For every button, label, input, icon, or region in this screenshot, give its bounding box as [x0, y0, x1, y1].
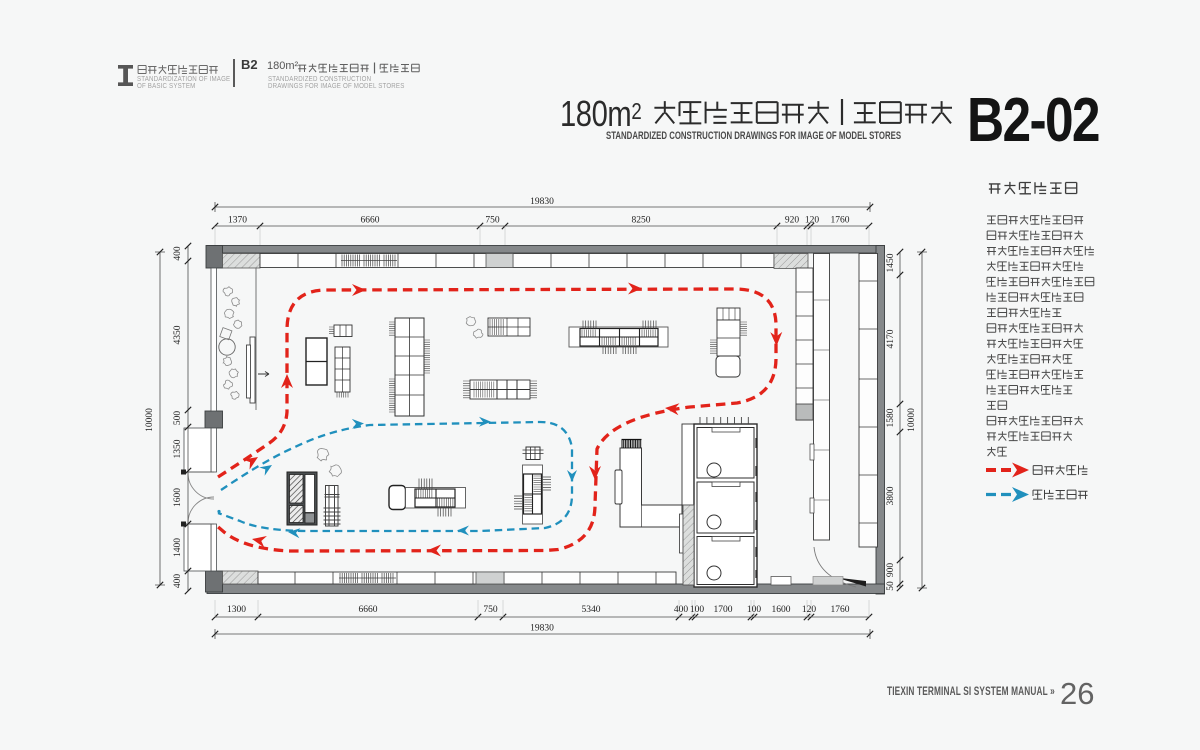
svg-text:1600: 1600 [772, 605, 791, 615]
svg-text:1300: 1300 [227, 605, 246, 615]
svg-text:920: 920 [785, 216, 800, 226]
svg-text:120: 120 [805, 216, 820, 226]
svg-text:900: 900 [886, 563, 896, 578]
svg-text:19830: 19830 [530, 624, 554, 634]
svg-text:1400: 1400 [173, 538, 183, 557]
svg-text:500: 500 [173, 411, 183, 426]
svg-text:19830: 19830 [530, 197, 554, 207]
svg-text:120: 120 [802, 605, 817, 615]
svg-text:100: 100 [690, 605, 705, 615]
svg-text:400: 400 [173, 246, 183, 261]
svg-text:4170: 4170 [886, 329, 896, 348]
svg-text:1760: 1760 [831, 216, 850, 226]
svg-text:1450: 1450 [886, 253, 896, 272]
svg-text:400: 400 [173, 574, 183, 589]
svg-text:400: 400 [674, 605, 689, 615]
svg-text:5340: 5340 [582, 605, 601, 615]
svg-text:1700: 1700 [714, 605, 733, 615]
svg-text:1760: 1760 [831, 605, 850, 615]
svg-text:4350: 4350 [173, 325, 183, 344]
svg-text:1370: 1370 [228, 216, 247, 226]
svg-text:50: 50 [886, 581, 896, 591]
svg-text:8250: 8250 [632, 216, 651, 226]
svg-text:6660: 6660 [361, 216, 380, 226]
svg-text:1350: 1350 [173, 439, 183, 458]
svg-text:6660: 6660 [359, 605, 378, 615]
svg-text:10000: 10000 [907, 408, 917, 432]
svg-text:100: 100 [747, 605, 762, 615]
svg-text:1580: 1580 [886, 408, 896, 427]
svg-text:3800: 3800 [886, 486, 896, 505]
svg-text:750: 750 [483, 605, 498, 615]
svg-text:10000: 10000 [145, 408, 155, 432]
svg-text:1600: 1600 [173, 488, 183, 507]
svg-text:750: 750 [485, 216, 500, 226]
